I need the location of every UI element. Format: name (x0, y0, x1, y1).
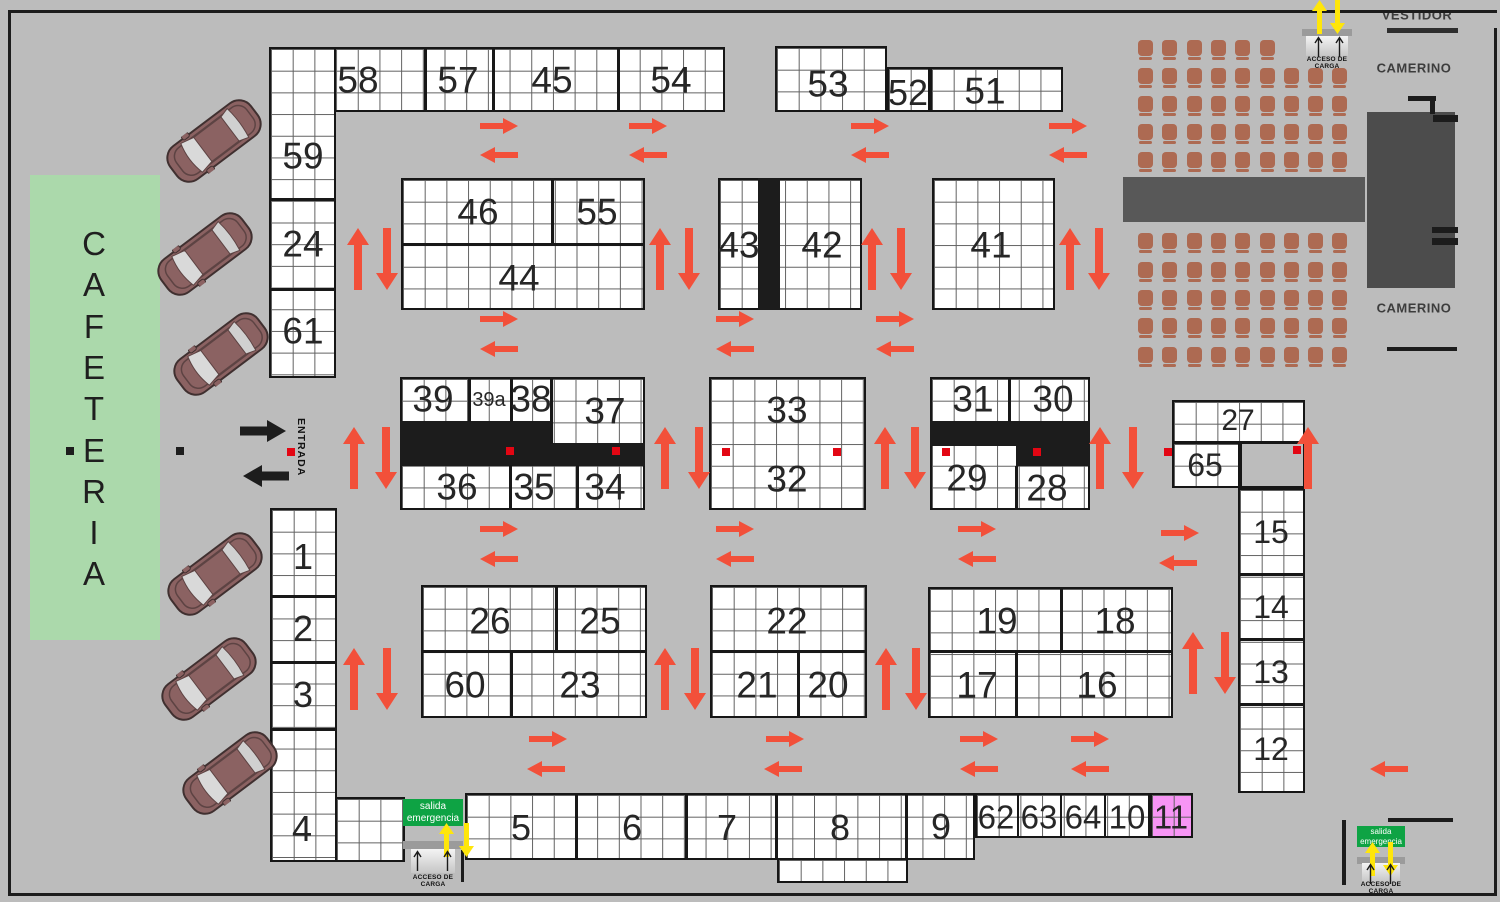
audience-chair (1332, 347, 1347, 363)
map-border-bottom (8, 893, 1497, 896)
red-marker-square (1164, 448, 1172, 456)
stage-mark (1432, 238, 1458, 245)
stage-mark (1432, 227, 1458, 233)
audience-chair (1211, 68, 1226, 84)
audience-chair (1187, 262, 1202, 278)
divider (1104, 793, 1106, 838)
up-arrow-icon (649, 228, 671, 290)
divider (1017, 793, 1019, 838)
booth-label-28: 28 (1026, 470, 1067, 507)
divider (401, 243, 645, 246)
audience-chair (1235, 347, 1250, 363)
booth-label-64: 64 (1065, 801, 1102, 834)
booth-label-42: 42 (801, 227, 842, 264)
divider (492, 47, 495, 112)
divider (1015, 652, 1018, 718)
audience-chair (1187, 68, 1202, 84)
wall-block-31 (930, 421, 1090, 446)
map-border-left (8, 10, 11, 896)
down-arrow-icon (1088, 228, 1110, 290)
down-arrow-icon (375, 427, 397, 489)
audience-chair (1138, 40, 1153, 56)
divider (710, 650, 867, 653)
divider (509, 465, 512, 510)
audience-chair (1162, 290, 1177, 306)
divider (905, 793, 908, 860)
audience-chair (1260, 233, 1275, 249)
audience-chair (1187, 96, 1202, 112)
audience-chair (1332, 318, 1347, 334)
parked-car (160, 524, 271, 623)
cafeteria-letter: E (83, 432, 105, 470)
parked-car (166, 304, 277, 403)
right-arrow-icon (716, 521, 754, 537)
booth-8-extension (777, 858, 908, 883)
wall-block-31 (1016, 444, 1090, 466)
audience-chair (1260, 124, 1275, 140)
booth-label-8: 8 (830, 810, 850, 846)
audience-chair (1332, 124, 1347, 140)
red-marker-square (506, 447, 514, 455)
stage-runway (1123, 177, 1365, 222)
left-arrow-icon (764, 761, 802, 777)
audience-chair (1308, 262, 1323, 278)
booth-label-41: 41 (970, 227, 1011, 264)
right-arrow-icon (876, 311, 914, 327)
up-arrow-icon (347, 228, 369, 290)
divider (775, 793, 778, 860)
audience-chair (1284, 347, 1299, 363)
parked-car (150, 204, 261, 303)
booth-label-60: 60 (444, 667, 485, 704)
audience-chair (1332, 233, 1347, 249)
booth-label-14: 14 (1253, 591, 1289, 623)
booth-label-30: 30 (1032, 381, 1073, 418)
up-arrow-icon (1314, 36, 1323, 58)
audience-chair (1187, 152, 1202, 168)
down-arrow-icon (1214, 632, 1236, 694)
left-arrow-icon (851, 147, 889, 163)
divider (1238, 703, 1305, 706)
red-marker-square (833, 448, 841, 456)
vestidor-wall (1387, 28, 1458, 33)
booth-label-24: 24 (282, 226, 323, 263)
booth-label-59: 59 (282, 138, 323, 175)
up-arrow-icon (343, 648, 365, 710)
audience-chair (1138, 318, 1153, 334)
left-arrow-icon (1071, 761, 1109, 777)
parked-car (175, 723, 286, 822)
audience-chair (1235, 262, 1250, 278)
booth-label-9: 9 (931, 809, 951, 845)
audience-chair (1211, 40, 1226, 56)
booth-label-61: 61 (282, 313, 323, 350)
right-arrow-icon (240, 420, 286, 442)
up-arrow-icon (343, 427, 365, 489)
audience-chair (1260, 152, 1275, 168)
right-arrow-icon (716, 311, 754, 327)
audience-chair (1284, 318, 1299, 334)
booth-label-37: 37 (584, 393, 625, 430)
divider (575, 793, 578, 860)
left-arrow-icon (1370, 761, 1408, 777)
booth-label-35: 35 (513, 469, 554, 506)
audience-chair (1211, 233, 1226, 249)
cafeteria-letter: R (82, 473, 106, 511)
booth-label-27: 27 (1221, 406, 1254, 436)
booth-label-55: 55 (576, 194, 617, 231)
audience-chair (1235, 124, 1250, 140)
audience-chair (1187, 347, 1202, 363)
booth-4-extension (335, 797, 405, 862)
audience-chair (1284, 68, 1299, 84)
booth-label-25: 25 (579, 603, 620, 640)
booth-label-23: 23 (559, 667, 600, 704)
red-marker-square (1033, 448, 1041, 456)
cafeteria-letter: C (82, 225, 106, 263)
up-arrow-icon (1366, 863, 1375, 885)
audience-chair (1260, 96, 1275, 112)
map-border-right (1494, 28, 1497, 896)
divider (421, 650, 647, 653)
audience-chair (1284, 233, 1299, 249)
audience-chair (1260, 40, 1275, 56)
booth-label-46: 46 (457, 194, 498, 231)
booth-label-54: 54 (650, 62, 691, 99)
audience-chair (1138, 152, 1153, 168)
up-arrow-icon (654, 427, 676, 489)
booth-label-2: 2 (293, 611, 313, 647)
booth-label-32: 32 (766, 461, 807, 498)
right-arrow-icon (629, 118, 667, 134)
booth-label-39a: 39a (472, 390, 505, 410)
right-arrow-icon (766, 731, 804, 747)
audience-chair (1138, 96, 1153, 112)
booth-label-38: 38 (510, 381, 551, 418)
up-arrow-icon (1182, 632, 1204, 694)
booth-label-6: 6 (622, 810, 642, 846)
audience-chair (1162, 262, 1177, 278)
red-marker-square (612, 447, 620, 455)
divider (617, 47, 620, 112)
divider (1060, 793, 1062, 838)
audience-chair (1211, 96, 1226, 112)
down-arrow-icon (1330, 0, 1345, 34)
down-arrow-icon (1122, 427, 1144, 489)
audience-chair (1260, 318, 1275, 334)
left-arrow-icon (480, 551, 518, 567)
left-arrow-icon (527, 761, 565, 777)
audience-chair (1235, 318, 1250, 334)
right-arrow-icon (480, 521, 518, 537)
booth-label-3: 3 (293, 677, 313, 713)
booth-label-10: 10 (1109, 801, 1146, 834)
audience-chair (1138, 262, 1153, 278)
wall-bottom-right-h (1388, 818, 1453, 822)
left-arrow-icon (480, 341, 518, 357)
divider (269, 288, 336, 291)
left-arrow-icon (629, 147, 667, 163)
audience-chair (1162, 96, 1177, 112)
audience-chair (1332, 152, 1347, 168)
booth-label-7: 7 (717, 810, 737, 846)
booth-label-4: 4 (292, 811, 312, 847)
audience-chair (1308, 124, 1323, 140)
cafeteria-letter: I (89, 514, 98, 552)
entrada-label: ENTRADA (295, 418, 307, 476)
audience-chair (1284, 96, 1299, 112)
booth-label-15: 15 (1253, 516, 1289, 548)
audience-chair (1235, 96, 1250, 112)
audience-chair (1308, 152, 1323, 168)
left-arrow-icon (876, 341, 914, 357)
right-arrow-icon (1049, 118, 1087, 134)
camerino-bottom-label: CAMERINO (1369, 301, 1459, 316)
booth-label-26: 26 (469, 603, 510, 640)
booth-label-13: 13 (1253, 656, 1289, 688)
audience-chair (1235, 68, 1250, 84)
left-arrow-icon (960, 761, 998, 777)
booth-label-43: 43 (718, 227, 759, 264)
divider (1015, 466, 1018, 510)
audience-chair (1308, 290, 1323, 306)
audience-chair (1235, 290, 1250, 306)
audience-chair (1162, 40, 1177, 56)
cafeteria-letter: T (84, 390, 104, 428)
booth-label-51: 51 (964, 73, 1005, 110)
right-arrow-icon (851, 118, 889, 134)
divider (1238, 638, 1305, 641)
audience-chair (1332, 290, 1347, 306)
left-arrow-icon (716, 551, 754, 567)
audience-chair (1235, 233, 1250, 249)
audience-chair (1138, 68, 1153, 84)
booth-label-18: 18 (1094, 603, 1135, 640)
booth-label-53: 53 (807, 66, 848, 103)
booth-label-1: 1 (293, 539, 313, 575)
right-arrow-icon (960, 731, 998, 747)
booth-label-22: 22 (766, 603, 807, 640)
booth-label-58: 58 (337, 62, 378, 99)
divider (424, 47, 427, 112)
down-arrow-icon (376, 228, 398, 290)
loading-dock-label: ACCESO DECARGA (413, 874, 453, 888)
audience-chair (1162, 152, 1177, 168)
booth-label-44: 44 (498, 260, 539, 297)
booth-label-12: 12 (1253, 733, 1289, 765)
booth-label-11: 11 (1154, 801, 1188, 834)
right-arrow-icon (958, 521, 996, 537)
audience-chair (1138, 124, 1153, 140)
parked-car (154, 629, 265, 728)
left-arrow-icon (958, 551, 996, 567)
divider (269, 198, 336, 201)
exhibition-floor-plan: VESTIDOR CAMERINO CAMERINO ENTRADA CAFET… (0, 0, 1500, 902)
red-marker-square (722, 448, 730, 456)
up-arrow-icon (443, 850, 452, 872)
down-arrow-icon (905, 648, 927, 710)
audience-chair (1211, 318, 1226, 334)
audience-chair (1211, 347, 1226, 363)
audience-chair (1235, 152, 1250, 168)
wall-block-39 (550, 443, 645, 466)
up-arrow-icon (413, 850, 422, 872)
audience-chair (1284, 124, 1299, 140)
map-border-top (8, 10, 1497, 13)
booth-label-65: 65 (1187, 449, 1223, 481)
up-arrow-icon (1297, 427, 1319, 489)
stage-block (1367, 112, 1455, 288)
cafeteria-letter: A (83, 266, 105, 304)
down-arrow-icon (684, 648, 706, 710)
right-arrow-icon (1161, 525, 1199, 541)
audience-chair (1187, 233, 1202, 249)
right-arrow-icon (529, 731, 567, 747)
audience-chair (1138, 233, 1153, 249)
divider (685, 793, 688, 860)
audience-chair (1332, 96, 1347, 112)
up-arrow-icon (874, 427, 896, 489)
audience-chair (1260, 290, 1275, 306)
divider (270, 661, 337, 664)
audience-chair (1332, 68, 1347, 84)
left-arrow-icon (243, 465, 289, 487)
booth-label-20: 20 (807, 667, 848, 704)
camerino-wall (1387, 347, 1457, 351)
audience-chair (1211, 290, 1226, 306)
booth-label-19: 19 (976, 603, 1017, 640)
audience-chair (1211, 124, 1226, 140)
up-arrow-icon (1089, 427, 1111, 489)
booth-label-62: 62 (978, 801, 1015, 834)
audience-chair (1162, 233, 1177, 249)
wall-block-39 (400, 421, 552, 466)
audience-chair (1187, 40, 1202, 56)
booth-label-63: 63 (1021, 801, 1058, 834)
divider (270, 595, 337, 598)
up-arrow-icon (1335, 36, 1344, 58)
black-marker-square (176, 447, 184, 455)
emergency-exit-sign: salidaemergencia (403, 799, 463, 826)
left-arrow-icon (1159, 555, 1197, 571)
divider (576, 465, 579, 510)
booth-label-17: 17 (956, 667, 997, 704)
divider (551, 178, 554, 246)
booth-label-57: 57 (437, 62, 478, 99)
down-arrow-icon (459, 823, 474, 857)
up-arrow-icon (1059, 228, 1081, 290)
audience-chair (1308, 233, 1323, 249)
booth-label-39: 39 (412, 381, 453, 418)
audience-chair (1284, 152, 1299, 168)
up-arrow-icon (654, 648, 676, 710)
divider (928, 650, 1173, 653)
booth-label-34: 34 (584, 469, 625, 506)
down-arrow-icon (376, 648, 398, 710)
audience-chair (1162, 318, 1177, 334)
booth-label-33: 33 (766, 392, 807, 429)
camerino-top-label: CAMERINO (1369, 61, 1459, 76)
audience-chair (1332, 262, 1347, 278)
audience-chair (1162, 347, 1177, 363)
audience-chair (1308, 318, 1323, 334)
divider (555, 585, 558, 651)
divider (1008, 377, 1011, 422)
right-arrow-icon (1071, 731, 1109, 747)
wall-bottom-right-v (1342, 820, 1346, 885)
divider (468, 377, 471, 422)
audience-chair (1187, 124, 1202, 140)
red-marker-square (942, 448, 950, 456)
divider (797, 652, 800, 718)
booth-label-29: 29 (946, 460, 987, 497)
audience-chair (1162, 124, 1177, 140)
audience-chair (1260, 262, 1275, 278)
down-arrow-icon (890, 228, 912, 290)
stage-mark (1433, 115, 1458, 122)
down-arrow-icon (678, 228, 700, 290)
audience-chair (1187, 318, 1202, 334)
audience-chair (1211, 262, 1226, 278)
audience-chair (1308, 347, 1323, 363)
audience-chair (1162, 68, 1177, 84)
parked-car (159, 91, 270, 190)
booth-label-45: 45 (531, 62, 572, 99)
down-arrow-icon (904, 427, 926, 489)
divider (270, 728, 337, 731)
audience-chair (1284, 290, 1299, 306)
divider (1238, 573, 1305, 576)
right-arrow-icon (480, 311, 518, 327)
cafeteria-letter: E (83, 349, 105, 387)
left-arrow-icon (480, 147, 518, 163)
audience-chair (1308, 96, 1323, 112)
up-arrow-icon (861, 228, 883, 290)
audience-chair (1284, 262, 1299, 278)
booth-label-16: 16 (1076, 667, 1117, 704)
up-arrow-icon (1312, 0, 1327, 34)
booth-label-36: 36 (436, 469, 477, 506)
left-arrow-icon (716, 341, 754, 357)
booth-label-21: 21 (736, 667, 777, 704)
divider (510, 652, 513, 718)
stage-mark (1430, 96, 1435, 114)
right-arrow-icon (480, 118, 518, 134)
divider (1060, 587, 1063, 651)
black-marker-square (66, 447, 74, 455)
wall-block-43-42 (758, 178, 780, 310)
audience-chair (1260, 68, 1275, 84)
audience-chair (1308, 68, 1323, 84)
dock-bar (403, 841, 463, 849)
audience-chair (1187, 290, 1202, 306)
cafeteria-letter: A (83, 555, 105, 593)
audience-chair (1260, 347, 1275, 363)
audience-chair (1138, 347, 1153, 363)
booth-label-31: 31 (952, 381, 993, 418)
audience-chair (1211, 152, 1226, 168)
left-arrow-icon (1049, 147, 1087, 163)
up-arrow-icon (1386, 863, 1395, 885)
audience-chair (1235, 40, 1250, 56)
red-marker-square (287, 448, 295, 456)
booth-label-5: 5 (511, 810, 531, 846)
booth-label-52: 52 (888, 75, 928, 111)
down-arrow-icon (688, 427, 710, 489)
cafeteria-letter: F (84, 308, 104, 346)
up-arrow-icon (875, 648, 897, 710)
audience-chair (1138, 290, 1153, 306)
